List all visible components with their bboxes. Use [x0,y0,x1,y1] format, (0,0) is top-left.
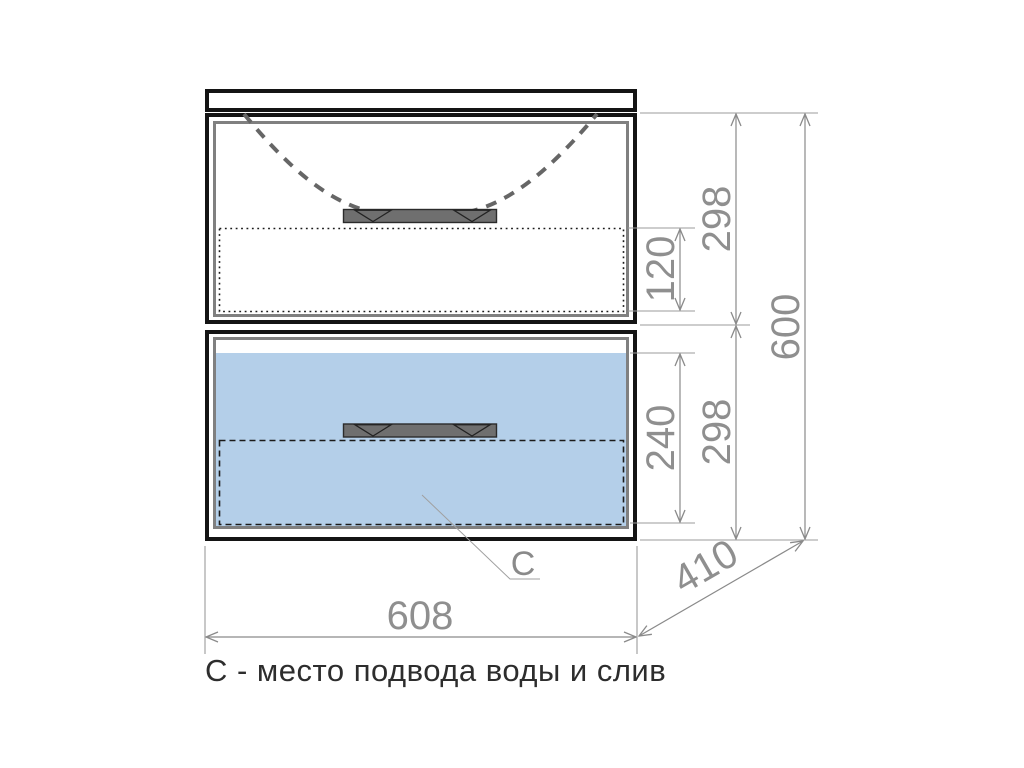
technical-drawing-canvas: 120 298 240 298 600 608 410 C С - место … [0,0,1024,768]
dimension-value: 298 [695,186,739,253]
top-drawer-handle [344,210,497,223]
dimension-value: 600 [764,294,808,361]
top-drawer [207,114,635,322]
dimension-value: 298 [695,399,739,466]
dim-section-bottom: 298 [695,326,739,539]
bottom-drawer [207,332,635,539]
dim-inner-bottom: 240 [639,354,683,522]
dimension-value: 410 [666,531,746,602]
connection-label: C [511,545,536,583]
countertop-panel [207,91,635,110]
dim-inner-top: 120 [639,229,683,310]
cabinet-drawing: 120 298 240 298 600 608 410 C С - место … [0,0,1024,768]
dim-section-top: 298 [695,114,739,324]
water-connection-highlight-zone [216,353,626,526]
dim-height-total: 600 [764,114,808,539]
dimension-value: 240 [639,405,683,472]
dim-depth: 410 [639,531,803,636]
dim-width: 608 [206,594,636,638]
dimension-value: 608 [387,594,454,638]
caption-text: С - место подвода воды и слив [205,653,666,688]
bottom-drawer-handle [344,424,497,437]
dimension-value: 120 [639,236,683,303]
